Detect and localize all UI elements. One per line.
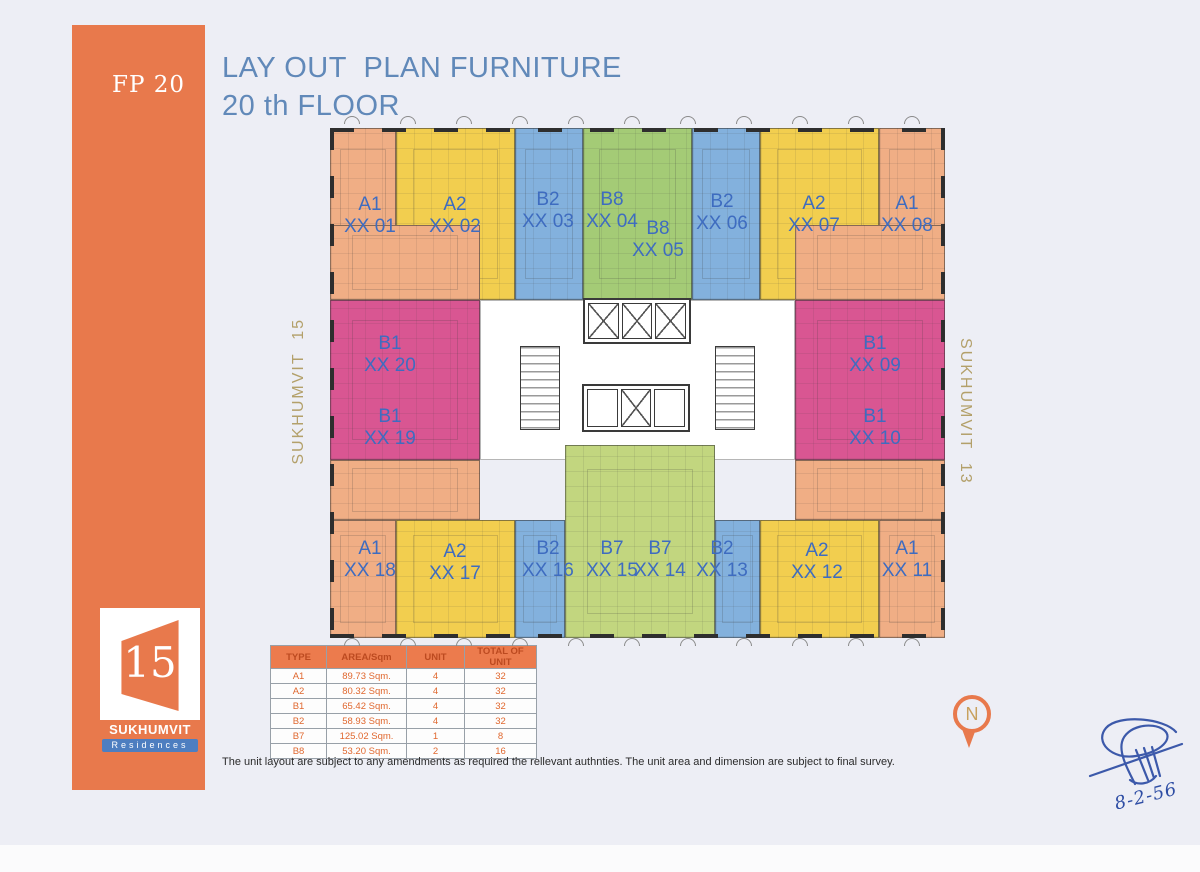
table-row: A280.32 Sqm.432	[271, 684, 537, 699]
door-arc-icon	[792, 116, 808, 124]
door-arc-icon	[904, 116, 920, 124]
wall-top	[330, 128, 945, 132]
street-label-right: SUKHUMVIT 13	[956, 338, 974, 485]
table-cell: 32	[465, 684, 537, 699]
unit-label-xx-05: B8XX 05	[632, 218, 684, 262]
logo-subtitle: Residences	[102, 739, 198, 752]
unit-summary-table: TYPEAREA/SqmUNITTOTAL OF UNIT A189.73 Sq…	[270, 645, 537, 759]
logo-name: SUKHUMVIT	[100, 722, 200, 737]
table-cell: 32	[465, 669, 537, 684]
door-arc-icon	[568, 638, 584, 646]
unit-label-xx-17: A2XX 17	[429, 541, 481, 585]
table-cell: 125.02 Sqm.	[327, 729, 407, 744]
unit-label-xx-07: A2XX 07	[788, 193, 840, 237]
table-cell: 80.32 Sqm.	[327, 684, 407, 699]
stairwell-right	[715, 346, 755, 430]
table-cell: 32	[465, 714, 537, 729]
door-arc-icon	[680, 638, 696, 646]
unit-label-xx-12: A2XX 12	[791, 540, 843, 584]
unit-label-xx-06: B2XX 06	[696, 191, 748, 235]
unit-label-xx-18: A1XX 18	[344, 538, 396, 582]
unit-label-xx-10: B1XX 10	[849, 406, 901, 450]
unit-label-xx-14: B7XX 14	[634, 538, 686, 582]
unit-label-xx-13: B2XX 13	[696, 538, 748, 582]
service-room	[654, 389, 685, 427]
table-header-cell: UNIT	[407, 646, 465, 669]
wall-right	[941, 128, 945, 638]
street-label-left: SUKHUMVIT 15	[290, 318, 308, 465]
page-bottom-edge	[0, 845, 1200, 872]
table-cell: A2	[271, 684, 327, 699]
north-pin-icon	[962, 729, 976, 748]
table-header-cell: TOTAL OF UNIT	[465, 646, 537, 669]
table-cell: 8	[465, 729, 537, 744]
disclaimer-text: The unit layout are subject to any amend…	[222, 756, 902, 768]
unit-label-xx-16: B2XX 16	[522, 538, 574, 582]
title-line2: 20 th FLOOR	[222, 90, 400, 122]
door-arc-icon	[624, 116, 640, 124]
unit-block-peach	[795, 460, 945, 520]
table-cell: 89.73 Sqm.	[327, 669, 407, 684]
door-arc-icon	[344, 638, 360, 646]
table-cell: 4	[407, 714, 465, 729]
unit-label-xx-09: B1XX 09	[849, 333, 901, 377]
north-compass-icon: N	[953, 695, 991, 733]
table-cell: 4	[407, 699, 465, 714]
unit-label-xx-04: B8XX 04	[586, 189, 638, 233]
table-cell: 65.42 Sqm.	[327, 699, 407, 714]
floorplan: A1XX 01A2XX 02B2XX 03B8XX 04B8XX 05B2XX …	[330, 128, 945, 638]
door-arc-icon	[400, 638, 416, 646]
table-header-row: TYPEAREA/SqmUNITTOTAL OF UNIT	[271, 646, 537, 669]
table-cell: 1	[407, 729, 465, 744]
table-body: A189.73 Sqm.432A280.32 Sqm.432B165.42 Sq…	[271, 669, 537, 759]
table-cell: 4	[407, 669, 465, 684]
unit-label-xx-08: A1XX 08	[881, 193, 933, 237]
door-arc-icon	[848, 638, 864, 646]
table-cell: 58.93 Sqm.	[327, 714, 407, 729]
page-title: LAY OUT PLAN FURNITURE20 th FLOOR	[222, 50, 622, 125]
door-arc-icon	[736, 638, 752, 646]
logo: 15	[100, 608, 200, 720]
door-arc-icon	[736, 116, 752, 124]
elevator-icon	[588, 303, 619, 339]
door-arc-icon	[624, 638, 640, 646]
door-arc-icon	[680, 116, 696, 124]
elevator-icon	[622, 303, 653, 339]
wall-bottom	[330, 634, 945, 638]
unit-label-xx-02: A2XX 02	[429, 194, 481, 238]
elevator-icon	[621, 389, 652, 427]
table-row: B7125.02 Sqm.18	[271, 729, 537, 744]
unit-label-xx-03: B2XX 03	[522, 189, 574, 233]
wall-left	[330, 128, 334, 638]
table-row: B258.93 Sqm.432	[271, 714, 537, 729]
table-cell: 32	[465, 699, 537, 714]
unit-block-peach	[330, 460, 480, 520]
table-cell: B2	[271, 714, 327, 729]
table-cell: 4	[407, 684, 465, 699]
elevator-bank	[583, 298, 691, 344]
elevator-icon	[655, 303, 686, 339]
table-cell: A1	[271, 669, 327, 684]
table-cell: B7	[271, 729, 327, 744]
table-cell: B1	[271, 699, 327, 714]
door-arc-icon	[512, 638, 528, 646]
logo-number: 15	[100, 638, 200, 687]
service-core	[582, 384, 690, 432]
sheet-code: FP 20	[112, 72, 185, 98]
table-header-cell: AREA/Sqm	[327, 646, 407, 669]
unit-label-xx-15: B7XX 15	[586, 538, 638, 582]
table-row: B165.42 Sqm.432	[271, 699, 537, 714]
title-line1: LAY OUT PLAN FURNITURE	[222, 52, 622, 84]
table-row: A189.73 Sqm.432	[271, 669, 537, 684]
door-arc-icon	[848, 116, 864, 124]
table-header-cell: TYPE	[271, 646, 327, 669]
stairwell-left	[520, 346, 560, 430]
service-room	[587, 389, 618, 427]
unit-label-xx-11: A1XX 11	[882, 538, 932, 582]
door-arc-icon	[904, 638, 920, 646]
unit-label-xx-19: B1XX 19	[364, 406, 416, 450]
door-arc-icon	[792, 638, 808, 646]
unit-label-xx-01: A1XX 01	[344, 194, 396, 238]
unit-label-xx-20: B1XX 20	[364, 333, 416, 377]
door-arc-icon	[456, 638, 472, 646]
